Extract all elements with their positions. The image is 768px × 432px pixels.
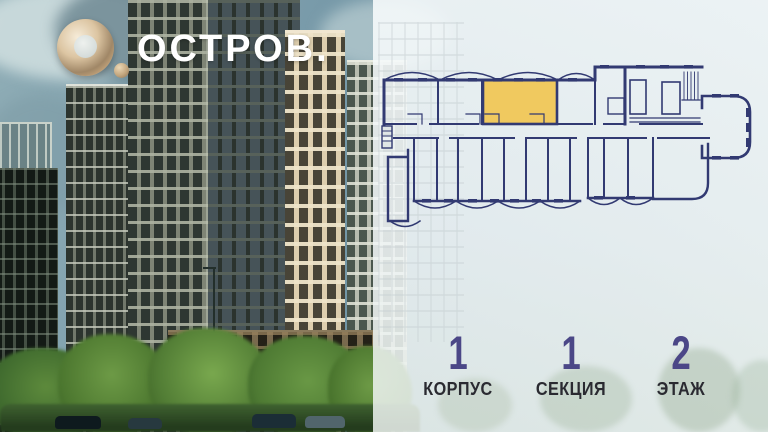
car bbox=[128, 418, 162, 429]
brand-name: ОСТРОВ. bbox=[137, 17, 330, 83]
rooftop-pergola bbox=[0, 122, 52, 172]
app-screen: ОСТРОВ. 1 КОРПУС 1 СЕКЦИЯ 2 ЭТАЖ bbox=[0, 0, 768, 432]
logo-ring-icon bbox=[57, 19, 114, 76]
stat-sektsiya: 1 СЕКЦИЯ bbox=[526, 329, 616, 400]
logo-dot-icon bbox=[114, 63, 129, 78]
car bbox=[55, 416, 101, 429]
stat-korpus: 1 КОРПУС bbox=[413, 329, 503, 400]
car bbox=[252, 414, 296, 428]
stat-korpus-label: КОРПУС bbox=[418, 379, 499, 400]
stat-etazh-value: 2 bbox=[671, 329, 690, 377]
logo[interactable]: ОСТРОВ. bbox=[57, 17, 337, 83]
logo-ring-hole bbox=[74, 35, 97, 58]
stat-sektsiya-label: СЕКЦИЯ bbox=[531, 379, 612, 400]
stat-etazh-label: ЭТАЖ bbox=[641, 379, 722, 400]
car bbox=[305, 416, 345, 428]
stat-etazh: 2 ЭТАЖ bbox=[636, 329, 726, 400]
stat-korpus-value: 1 bbox=[448, 329, 467, 377]
floor-plan bbox=[378, 52, 760, 232]
stat-sektsiya-value: 1 bbox=[561, 329, 580, 377]
selected-unit[interactable] bbox=[483, 80, 557, 124]
street-light-arm bbox=[203, 267, 216, 269]
